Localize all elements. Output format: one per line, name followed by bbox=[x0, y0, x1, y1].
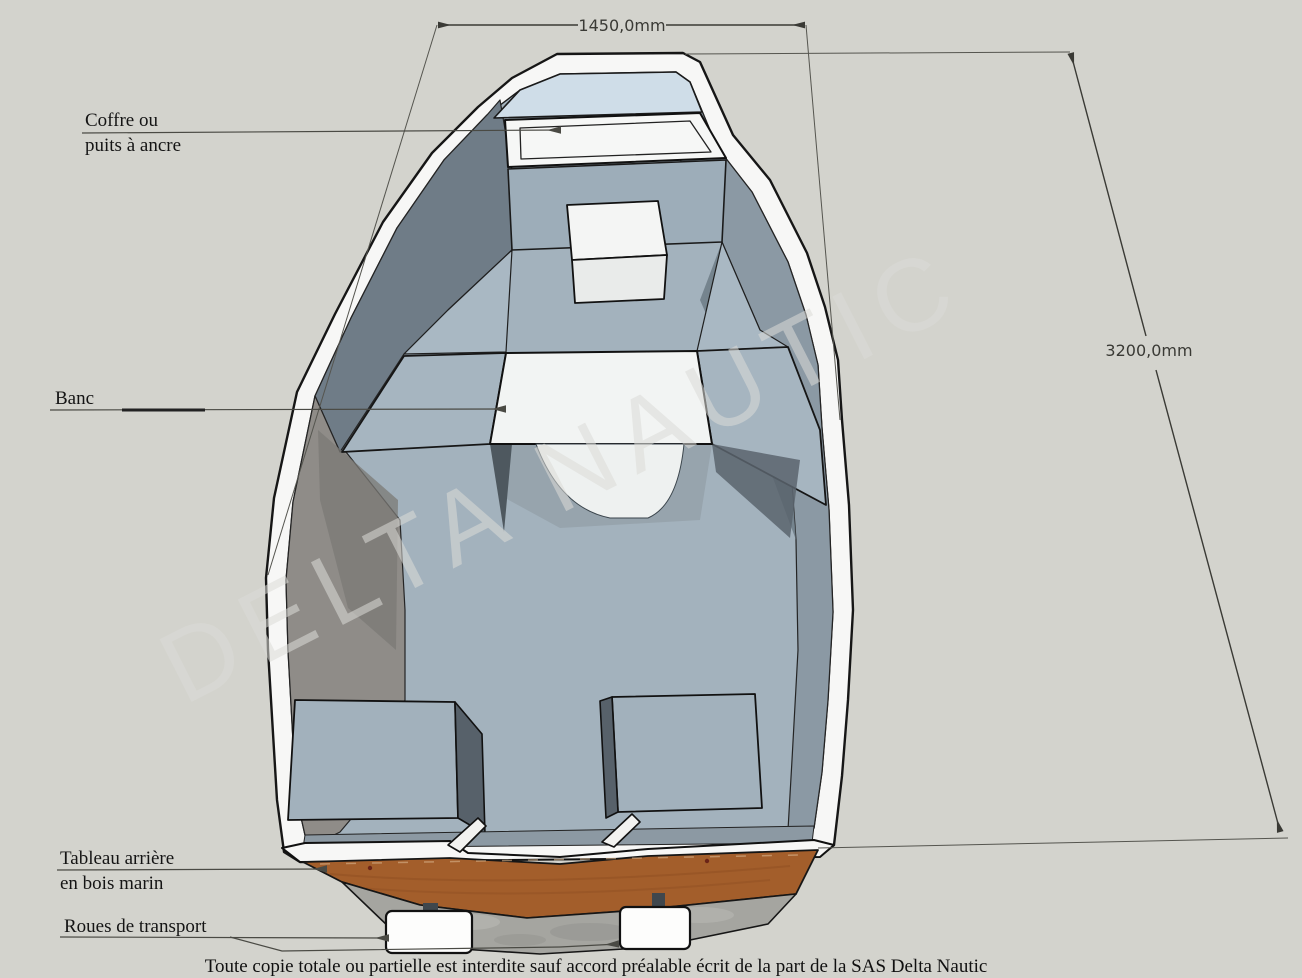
transom-bolt-left bbox=[368, 866, 372, 870]
wheels-label: Roues de transport bbox=[64, 916, 207, 937]
wheel-left bbox=[386, 911, 472, 953]
anchor-locker-label-line2: puits à ancre bbox=[85, 135, 181, 156]
storage-box-front bbox=[572, 255, 667, 303]
diagram-canvas: DELTA NAUTIC 1450,0mm 3200,0mm Coffre ou… bbox=[0, 0, 1302, 978]
beam-dimension-value: 1450,0mm bbox=[578, 16, 665, 35]
transom-label-line2: en bois marin bbox=[60, 873, 164, 894]
copyright-notice: Toute copie totale ou partielle est inte… bbox=[205, 956, 988, 977]
length-dimension-value: 3200,0mm bbox=[1105, 341, 1192, 360]
hull-bottom-texture-4 bbox=[494, 934, 546, 946]
transom-bolt-right bbox=[705, 859, 709, 863]
boat-plan-drawing: DELTA NAUTIC 1450,0mm 3200,0mm Coffre ou… bbox=[0, 0, 1302, 978]
wheel-right-bracket bbox=[652, 893, 665, 907]
bench-label: Banc bbox=[55, 388, 94, 409]
hull-bottom-texture-2 bbox=[550, 923, 630, 941]
stern-box-right-top bbox=[612, 694, 762, 812]
wheel-right bbox=[620, 907, 690, 949]
anchor-locker-label-line1: Coffre ou bbox=[85, 110, 158, 131]
storage-box-top bbox=[567, 201, 667, 260]
transom-label-line1: Tableau arrière bbox=[60, 848, 174, 869]
stern-box-left-top bbox=[288, 700, 458, 820]
